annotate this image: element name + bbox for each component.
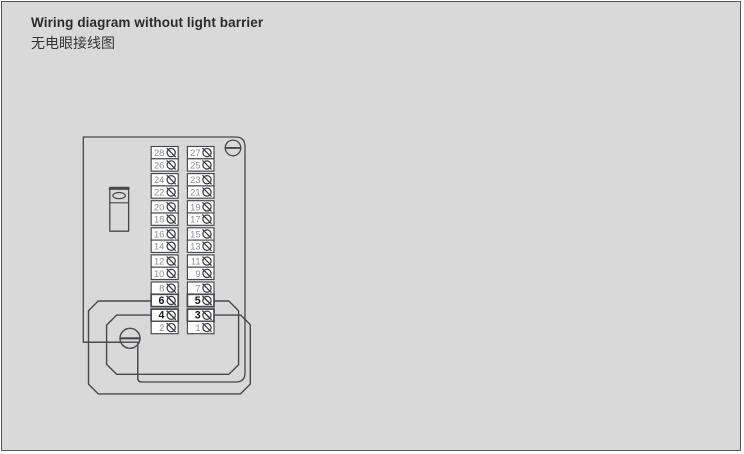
terminal-cell-14: 14: [151, 240, 178, 252]
screw-terminal-icon: [203, 203, 211, 211]
terminal-cell-28: 28: [151, 147, 178, 159]
terminal-number: 4: [158, 310, 164, 322]
screw-terminal-icon: [167, 311, 175, 319]
screw-terminal-icon: [167, 230, 175, 238]
terminal-number: 6: [158, 295, 164, 307]
terminal-number: 18: [154, 214, 164, 225]
terminal-cell-2: 2: [151, 321, 178, 333]
terminal-cell-27: 27: [187, 147, 214, 159]
screw-terminal-icon: [167, 242, 175, 250]
terminal-cell-17: 17: [187, 213, 214, 225]
screw-terminal-icon: [167, 257, 175, 265]
screw-terminal-icon: [203, 242, 211, 250]
screw-terminal-icon: [167, 323, 175, 331]
screw-terminal-icon: [203, 323, 211, 331]
terminal-number: 10: [154, 268, 164, 279]
screw-terminal-icon: [203, 188, 211, 196]
terminal-number: 21: [190, 186, 200, 197]
title-block: Wiring diagram without light barrier 无电眼…: [31, 15, 263, 53]
terminal-number: 1: [195, 322, 200, 333]
jumper-component: [110, 187, 129, 231]
terminal-cell-3: 3: [187, 309, 214, 322]
terminal-cell-21: 21: [187, 186, 214, 198]
terminal-cell-1: 1: [187, 321, 214, 333]
screw-icon-bottom-left: [120, 328, 140, 348]
terminal-cell-23: 23: [187, 174, 214, 186]
terminal-cell-20: 20: [151, 201, 178, 213]
terminal-number: 12: [154, 255, 164, 266]
terminal-number: 13: [190, 241, 200, 252]
terminal-number: 22: [154, 186, 164, 197]
page-title: Wiring diagram without light barrier: [31, 15, 263, 30]
screw-terminal-icon: [167, 203, 175, 211]
terminal-number: 20: [154, 201, 164, 212]
terminal-number: 7: [195, 283, 200, 294]
terminal-cell-24: 24: [151, 174, 178, 186]
screw-terminal-icon: [167, 296, 175, 304]
terminal-cell-18: 18: [151, 213, 178, 225]
screw-terminal-icon: [203, 284, 211, 292]
terminal-number: 23: [190, 174, 200, 185]
terminal-number: 17: [190, 214, 200, 225]
terminal-number: 25: [190, 159, 200, 170]
terminal-cell-25: 25: [187, 159, 214, 171]
screw-terminal-icon: [203, 311, 211, 319]
terminal-cell-26: 26: [151, 159, 178, 171]
terminal-number: 3: [195, 310, 201, 322]
terminal-number: 24: [154, 174, 164, 185]
screw-terminal-icon: [167, 215, 175, 223]
terminal-cell-9: 9: [187, 267, 214, 279]
terminal-cell-10: 10: [151, 267, 178, 279]
terminal-cell-19: 19: [187, 201, 214, 213]
manual-page: Wiring diagram without light barrier 无电眼…: [1, 1, 741, 451]
terminal-cell-8: 8: [151, 282, 178, 294]
screw-terminal-icon: [203, 257, 211, 265]
terminal-number: 19: [190, 201, 200, 212]
terminal-number: 26: [154, 159, 164, 170]
terminal-cell-22: 22: [151, 186, 178, 198]
terminal-cell-5: 5: [187, 294, 214, 307]
screw-terminal-icon: [203, 215, 211, 223]
terminal-number: 14: [154, 241, 164, 252]
screw-terminal-icon: [167, 176, 175, 184]
terminal-cell-11: 11: [187, 255, 214, 267]
terminal-columns: 2826242220181614121086422725232119171513…: [151, 147, 214, 334]
terminal-number: 16: [154, 228, 164, 239]
terminal-number: 11: [191, 255, 201, 266]
screw-terminal-icon: [167, 161, 175, 169]
wiring-diagram: 2826242220181614121086422725232119171513…: [2, 2, 741, 451]
screw-icon-top-right: [225, 140, 241, 156]
screw-terminal-icon: [167, 284, 175, 292]
screw-terminal-icon: [203, 176, 211, 184]
screw-terminal-icon: [203, 269, 211, 277]
terminal-cell-12: 12: [151, 255, 178, 267]
terminal-number: 9: [195, 268, 200, 279]
screw-terminal-icon: [203, 296, 211, 304]
screw-terminal-icon: [167, 149, 175, 157]
terminal-cell-13: 13: [187, 240, 214, 252]
screw-terminal-icon: [167, 188, 175, 196]
page-subtitle-chinese: 无电眼接线图: [31, 33, 263, 53]
screw-terminal-icon: [167, 269, 175, 277]
terminal-number: 2: [159, 322, 164, 333]
terminal-cell-16: 16: [151, 228, 178, 240]
terminal-number: 27: [190, 147, 200, 158]
terminal-number: 5: [195, 295, 201, 307]
terminal-number: 8: [159, 283, 164, 294]
terminal-cell-15: 15: [187, 228, 214, 240]
screw-terminal-icon: [203, 230, 211, 238]
terminal-number: 28: [154, 147, 164, 158]
terminal-cell-4: 4: [151, 309, 178, 322]
terminal-number: 15: [190, 228, 200, 239]
screw-terminal-icon: [203, 149, 211, 157]
screw-terminal-icon: [203, 161, 211, 169]
terminal-cell-7: 7: [187, 282, 214, 294]
terminal-cell-6: 6: [151, 294, 178, 307]
